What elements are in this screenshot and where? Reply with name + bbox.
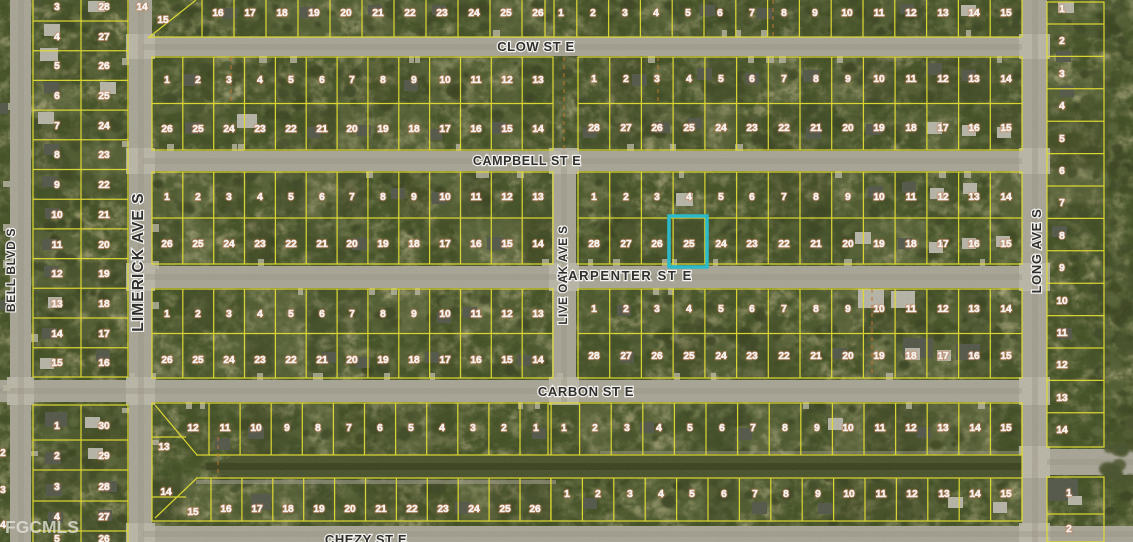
svg-text:FGCMLS: FGCMLS [5, 517, 79, 537]
